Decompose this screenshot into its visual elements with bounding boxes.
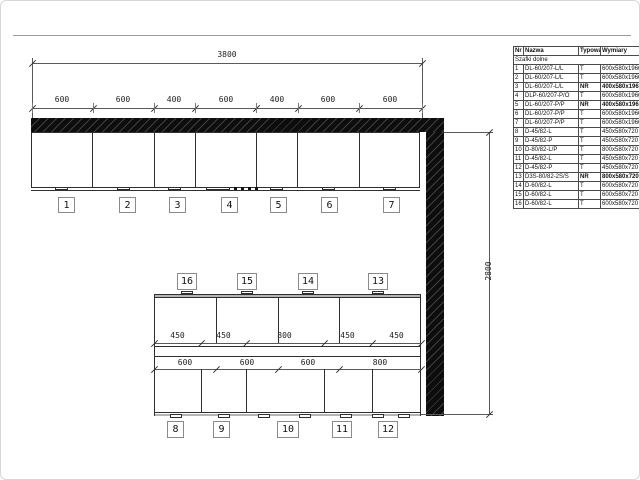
dim-stub	[32, 103, 33, 113]
segment-dim: 600	[211, 95, 241, 104]
dim-stub	[154, 103, 155, 113]
cabinet-label-3: 3	[169, 197, 186, 213]
segment-dim: 600	[47, 95, 77, 104]
cabinet-label-8: 8	[167, 421, 184, 438]
cabinet-label-2: 2	[119, 197, 136, 213]
cabinet-handle	[270, 187, 283, 190]
countertop-front-line	[31, 190, 420, 191]
segment-dim: 600	[108, 95, 138, 104]
island-leg	[218, 414, 230, 418]
dim-stub	[256, 103, 257, 113]
island-dim: 600	[294, 358, 322, 367]
oven-knob	[234, 187, 237, 190]
cabinet-divider	[256, 132, 257, 188]
cabinet-label-12: 12	[378, 421, 398, 438]
cabinet-divider	[154, 132, 155, 188]
island-dim: 600	[233, 358, 261, 367]
dim-stub	[298, 103, 299, 113]
island-divider	[339, 297, 340, 343]
cabinet-label-16: 16	[177, 273, 197, 290]
segment-dim: 600	[375, 95, 405, 104]
extension-line	[444, 132, 493, 133]
segment-dim: 400	[262, 95, 292, 104]
wall-horizontal	[31, 118, 444, 132]
floor-plan: 3800 600 600 400 600 400 600 600 1 2 3 4…	[1, 1, 640, 480]
island-dim: 450	[210, 331, 237, 340]
cabinet-handle	[168, 187, 181, 190]
cabinet-handle	[322, 187, 335, 190]
island-handle	[372, 291, 384, 294]
island-divider	[201, 369, 202, 413]
island-dim: 450	[164, 331, 191, 340]
cabinet-label-15: 15	[237, 273, 257, 290]
cabinet-label-14: 14	[298, 273, 318, 290]
dim-stub	[195, 103, 196, 113]
island-handle	[241, 291, 253, 294]
cabinet-handle	[117, 187, 130, 190]
cabinet-label-5: 5	[270, 197, 287, 213]
base-cabinet-run	[31, 132, 420, 188]
island-dim: 800	[366, 358, 394, 367]
cabinet-divider	[92, 132, 93, 188]
island-divider	[324, 369, 325, 413]
dim-stub	[359, 103, 360, 113]
cabinet-label-9: 9	[213, 421, 230, 438]
island-outline	[154, 294, 421, 416]
drawing-page: Nr Nazwa Typowa Wymiary Szafki dolne 1DL…	[0, 0, 640, 480]
overall-width-dimension-line	[32, 63, 422, 64]
cabinet-handle	[55, 187, 68, 190]
cabinet-label-1: 1	[58, 197, 75, 213]
cabinet-handle	[383, 187, 396, 190]
island-leg	[170, 414, 182, 418]
island-divider	[246, 369, 247, 413]
island-divider	[216, 297, 217, 343]
oven-handle-bar	[206, 187, 230, 190]
oven-knob	[241, 187, 244, 190]
cabinet-label-11: 11	[332, 421, 352, 438]
segment-dim: 400	[159, 95, 189, 104]
island-handle	[181, 291, 193, 294]
dim-stub	[422, 103, 423, 113]
segment-dim: 600	[313, 95, 343, 104]
island-dim: 450	[383, 331, 410, 340]
island-leg	[299, 414, 311, 418]
extension-line	[421, 414, 493, 415]
cabinet-label-13: 13	[368, 273, 388, 290]
wall-vertical	[426, 132, 444, 416]
island-divider	[278, 297, 279, 343]
island-leg	[258, 414, 270, 418]
island-dim: 800	[271, 331, 298, 340]
island-mid-line-2	[154, 356, 421, 357]
cabinet-label-7: 7	[383, 197, 400, 213]
cabinet-label-10: 10	[277, 421, 299, 438]
overall-height-value: 2800	[484, 254, 494, 288]
dim-stub	[93, 103, 94, 113]
island-leg	[340, 414, 352, 418]
island-mid-line-1	[154, 346, 421, 347]
island-dim-line-upper	[154, 343, 421, 344]
cabinet-label-6: 6	[321, 197, 338, 213]
cabinet-label-4: 4	[221, 197, 238, 213]
island-leg	[372, 414, 384, 418]
island-dim: 600	[171, 358, 199, 367]
island-leg	[398, 414, 410, 418]
oven-knob	[248, 187, 251, 190]
island-divider	[372, 369, 373, 413]
oven-knob	[255, 187, 258, 190]
overall-width-value: 3800	[197, 50, 257, 59]
island-dim-line-lower	[154, 369, 421, 370]
island-handle	[302, 291, 314, 294]
cabinet-divider	[297, 132, 298, 188]
island-bottom-inner-line	[154, 412, 421, 413]
island-top-inner-line	[154, 297, 421, 298]
cabinet-divider	[195, 132, 196, 188]
cabinet-divider	[359, 132, 360, 188]
